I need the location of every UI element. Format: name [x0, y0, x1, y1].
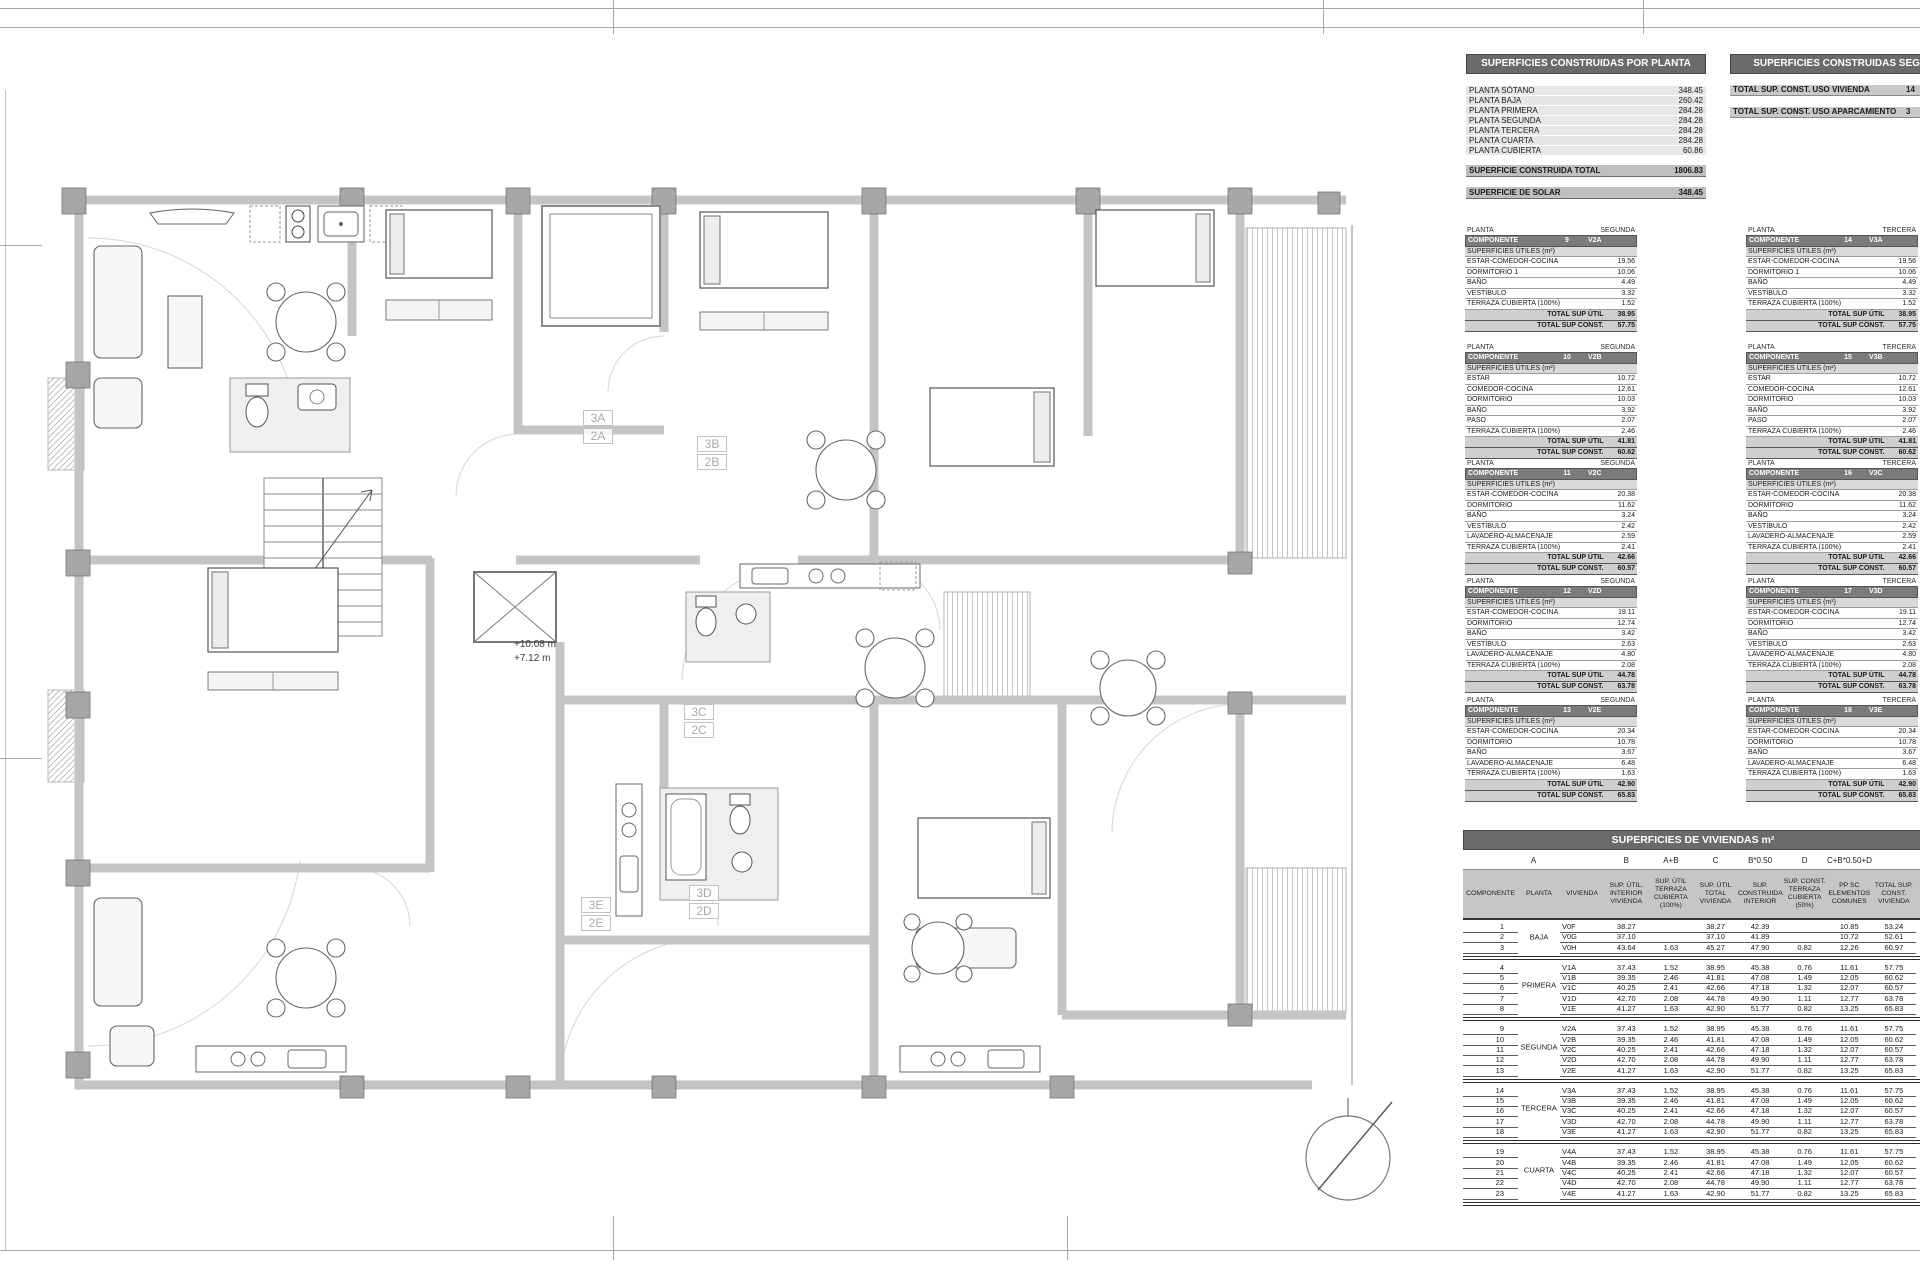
room-row: ESTAR-COMEDOR-COCINA 19.56	[1746, 257, 1918, 268]
total-util-row: TOTAL SUP ÚTIL 42.66	[1465, 553, 1637, 564]
header-cell: SUP. CONSTRUIDA INTERIOR	[1738, 870, 1783, 918]
componente-number: 11	[1546, 469, 1588, 479]
total-const-label: TOTAL SUP CONST.	[1818, 682, 1884, 692]
value-cell: 42.90	[1693, 1066, 1738, 1077]
total-util-value: 42.66	[1898, 553, 1916, 563]
room-label: ESTAR-COMEDOR-COCINA	[1467, 727, 1558, 737]
component-table: PLANTA SEGUNDA COMPONENTE 13 V2E SUPERFI…	[1465, 696, 1637, 802]
room-value: 3.24	[1621, 511, 1635, 521]
planta-label: PLANTA	[1467, 577, 1494, 586]
value-cell: 51.77	[1738, 1189, 1783, 1200]
room-value: 11.62	[1899, 501, 1916, 511]
room-value: 2.08	[1621, 661, 1635, 671]
table-row: 22 V4D 42.70 2.08 44.78 49.90 1.11 12.77…	[1463, 1178, 1920, 1188]
value-cell: 1.63	[1649, 1127, 1694, 1138]
row-value: 3	[1906, 107, 1910, 117]
room-value: 4.80	[1621, 650, 1635, 660]
room-row: BAÑO 3.92	[1746, 406, 1918, 417]
planta-row: PLANTA TERCERA	[1746, 696, 1918, 705]
group-separator	[1463, 1017, 1920, 1021]
total-util-value: 38.95	[1898, 310, 1916, 320]
componente-number: 16	[1827, 469, 1869, 479]
unit-label-top: 3D	[689, 885, 719, 901]
planta-group-label: SEGUNDA	[1518, 1042, 1560, 1051]
component-table: PLANTA TERCERA COMPONENTE 14 V3A SUPERFI…	[1746, 226, 1918, 332]
table-row: 9 V2A 37.43 1.52 38.95 45.38 0.76 11.61 …	[1463, 1024, 1920, 1034]
planta-value: TERCERA	[1883, 459, 1916, 468]
vivienda-cell: V2E	[1560, 1066, 1604, 1077]
row-label: PLANTA PRIMERA	[1469, 106, 1538, 115]
room-row: VESTÍBULO 3.32	[1746, 289, 1918, 300]
room-label: BAÑO	[1467, 748, 1487, 758]
componente-number: 9	[1546, 236, 1588, 246]
room-row: BAÑO 3.24	[1465, 511, 1637, 522]
room-label: BAÑO	[1748, 278, 1768, 288]
room-row: BAÑO 3.24	[1746, 511, 1918, 522]
section-band: SUPERFICIES ÚTILES (m²)	[1746, 480, 1918, 490]
planta-cell	[1518, 1004, 1560, 1015]
section-band: SUPERFICIES ÚTILES (m²)	[1465, 480, 1637, 490]
total-util-label: TOTAL SUP ÚTIL	[1828, 553, 1884, 563]
shaft	[542, 206, 660, 326]
room-row: ESTAR 10.72	[1465, 374, 1637, 385]
room-row: DORMITORIO 10.78	[1465, 738, 1637, 749]
component-table: PLANTA TERCERA COMPONENTE 16 V3C SUPERFI…	[1746, 459, 1918, 575]
room-label: DORMITORIO	[1467, 501, 1512, 511]
componente-cell: 8	[1463, 1004, 1518, 1015]
component-table: PLANTA SEGUNDA COMPONENTE 9 V2A SUPERFIC…	[1465, 226, 1637, 332]
componente-band: COMPONENTE 16 V3C	[1746, 468, 1918, 480]
unit-label-bottom: 2C	[684, 722, 714, 738]
value-cell: 41.27	[1604, 1127, 1649, 1138]
room-value: 2.07	[1621, 416, 1635, 426]
room-label: ESTAR-COMEDOR-COCINA	[1467, 608, 1558, 618]
room-rows: ESTAR-COMEDOR-COCINA 19.11 DORMITORIO 12…	[1746, 608, 1918, 671]
room-row: ESTAR-COMEDOR-COCINA 20.34	[1465, 727, 1637, 738]
planta-value: TERCERA	[1883, 226, 1916, 235]
componente-label: COMPONENTE	[1468, 706, 1546, 716]
componente-label: COMPONENTE	[1468, 469, 1546, 479]
planta-row: PLANTA TERCERA	[1746, 343, 1918, 352]
room-label: BAÑO	[1467, 406, 1487, 416]
componente-band: COMPONENTE 9 V2A	[1465, 235, 1637, 247]
total-util-row: TOTAL SUP ÚTIL 42.90	[1465, 780, 1637, 791]
row-label: PLANTA BAJA	[1469, 96, 1521, 105]
total-util-value: 42.90	[1617, 780, 1635, 790]
room-value: 3.42	[1621, 629, 1635, 639]
value-cell: 42.90	[1693, 1004, 1738, 1015]
header-cell: PP SC ELEMENTOS COMUNES	[1827, 870, 1872, 918]
room-value: 12.61	[1898, 385, 1916, 395]
unit-label-top: 3E	[581, 897, 611, 913]
formula-cell: C+B*0.50+D	[1827, 856, 1872, 866]
kitchen-bottom-left	[196, 1046, 346, 1072]
room-label: TERRAZA CUBIERTA (100%)	[1748, 543, 1841, 553]
room-value: 2.63	[1902, 640, 1916, 650]
planta-group-label: TERCERA	[1518, 1104, 1560, 1113]
unit-label-bottom: 2E	[581, 915, 611, 931]
componente-band: COMPONENTE 15 V3B	[1746, 352, 1918, 364]
room-value: 4.49	[1902, 278, 1916, 288]
value-cell: 0.82	[1782, 1004, 1827, 1015]
group-separator	[1463, 1140, 1920, 1144]
floor-plan	[0, 0, 1400, 1280]
planta-label: PLANTA	[1467, 226, 1494, 235]
componente-cell: 18	[1463, 1127, 1518, 1138]
unit-label-top: 3C	[684, 704, 714, 720]
table-row: 12 V2D 42.70 2.08 44.78 49.90 1.11 12.77…	[1463, 1055, 1920, 1065]
room-row: PASO 2.07	[1746, 416, 1918, 427]
room-row: VESTÍBULO 2.42	[1746, 522, 1918, 533]
room-row: TERRAZA CUBIERTA (100%) 2.46	[1465, 427, 1637, 438]
total-util-label: TOTAL SUP ÚTIL	[1828, 310, 1884, 320]
room-row: TERRAZA CUBIERTA (100%) 2.41	[1746, 543, 1918, 554]
room-row: DORMITORIO 10.03	[1746, 395, 1918, 406]
table-row: PLANTA CUBIERTA 60.86	[1466, 146, 1706, 156]
total-util-value: 44.78	[1898, 671, 1916, 681]
room-label: LAVADERO-ALMACENAJE	[1467, 759, 1553, 769]
componente-number: 12	[1546, 587, 1588, 597]
table-row: 3 V0H 43.64 1.63 45.27 47.90 0.82 12.26 …	[1463, 943, 1920, 953]
room-value: 1.63	[1621, 769, 1635, 779]
room-value: 10.06	[1617, 268, 1635, 278]
component-table: PLANTA SEGUNDA COMPONENTE 11 V2C SUPERFI…	[1465, 459, 1637, 575]
room-label: VESTÍBULO	[1748, 289, 1787, 299]
room-value: 10.72	[1898, 374, 1916, 384]
value-cell: 13.25	[1827, 1066, 1872, 1077]
room-value: 12.61	[1617, 385, 1635, 395]
planta-label: PLANTA	[1748, 226, 1775, 235]
room-label: ESTAR	[1748, 374, 1771, 384]
table-row: 13 V2E 41.27 1.63 42.90 51.77 0.82 13.25…	[1463, 1066, 1920, 1076]
room-row: VESTÍBULO 2.42	[1465, 522, 1637, 533]
room-row: TERRAZA CUBIERTA (100%) 2.46	[1746, 427, 1918, 438]
header-cell: VIVIENDA	[1560, 870, 1604, 918]
room-row: DORMITORIO 11.62	[1465, 501, 1637, 512]
room-row: TERRAZA CUBIERTA (100%) 1.63	[1746, 769, 1918, 780]
unit-label: 3E 2E	[581, 897, 611, 931]
kitchen-mid-right	[740, 562, 920, 590]
formula-cell: A	[1463, 856, 1604, 866]
room-label: BAÑO	[1748, 629, 1768, 639]
value-cell: 42.90	[1693, 1189, 1738, 1200]
room-value: 11.62	[1618, 501, 1635, 511]
room-row: DORMITORIO 10.03	[1465, 395, 1637, 406]
room-value: 2.59	[1902, 532, 1916, 542]
component-table: PLANTA TERCERA COMPONENTE 18 V3E SUPERFI…	[1746, 696, 1918, 802]
componente-number: 17	[1827, 587, 1869, 597]
room-label: VESTÍBULO	[1467, 289, 1506, 299]
room-label: COMEDOR-COCINA	[1748, 385, 1814, 395]
room-value: 3.24	[1902, 511, 1916, 521]
planta-value: SEGUNDA	[1600, 577, 1635, 586]
room-row: LAVADERO-ALMACENAJE 6.48	[1746, 759, 1918, 770]
componente-band: COMPONENTE 18 V3E	[1746, 705, 1918, 717]
value-cell: 65.83	[1872, 1004, 1917, 1015]
room-rows: ESTAR 10.72 COMEDOR-COCINA 12.61 DORMITO…	[1746, 374, 1918, 437]
planta-cell	[1518, 1066, 1560, 1077]
drawing-sheet: { "plan": { "elevation": {"line1": "+10.…	[0, 0, 1920, 1280]
total-util-label: TOTAL SUP ÚTIL	[1828, 780, 1884, 790]
componente-label: COMPONENTE	[1468, 587, 1546, 597]
room-row: TERRAZA CUBIERTA (100%) 1.63	[1465, 769, 1637, 780]
solar-row: SUPERFICIE DE SOLAR 348.45	[1466, 187, 1706, 199]
total-util-value: 38.95	[1617, 310, 1635, 320]
value-cell: 51.77	[1738, 1066, 1783, 1077]
room-value: 2.46	[1902, 427, 1916, 437]
room-row: ESTAR-COMEDOR-COCINA 20.34	[1746, 727, 1918, 738]
room-row: TERRAZA CUBIERTA (100%) 1.52	[1746, 299, 1918, 310]
room-value: 2.59	[1621, 532, 1635, 542]
planta-value: TERCERA	[1883, 577, 1916, 586]
table-bottom-rule	[1463, 1202, 1920, 1206]
room-label: ESTAR-COMEDOR-COCINA	[1748, 490, 1839, 500]
total-util-value: 41.81	[1617, 437, 1635, 447]
total-const-label: TOTAL SUP CONST.	[1818, 791, 1884, 801]
total-util-row: TOTAL SUP ÚTIL 38.95	[1465, 310, 1637, 321]
total-const-row: TOTAL SUP CONST. 57.75	[1465, 321, 1637, 332]
room-value: 20.38	[1617, 490, 1635, 500]
room-row: ESTAR-COMEDOR-COCINA 20.38	[1465, 490, 1637, 501]
planta-label: PLANTA	[1467, 459, 1494, 468]
planta-row: PLANTA TERCERA	[1746, 577, 1918, 586]
value-cell: 42.90	[1693, 1127, 1738, 1138]
total-const-row: TOTAL SUP CONST. 60.57	[1465, 564, 1637, 575]
solar-label: SUPERFICIE DE SOLAR	[1469, 187, 1561, 198]
total-util-label: TOTAL SUP ÚTIL	[1547, 780, 1603, 790]
componente-cell: 23	[1463, 1189, 1518, 1200]
total-util-label: TOTAL SUP ÚTIL	[1547, 310, 1603, 320]
planta-value: TERCERA	[1883, 343, 1916, 352]
vivienda-code: V3B	[1869, 353, 1915, 363]
componente-number: 14	[1827, 236, 1869, 246]
room-row: LAVADERO-ALMACENAJE 4.80	[1746, 650, 1918, 661]
row-label: PLANTA SÓTANO	[1469, 86, 1535, 95]
planta-row: PLANTA SEGUNDA	[1465, 696, 1637, 705]
componente-number: 10	[1546, 353, 1588, 363]
componente-band: COMPONENTE 10 V2B	[1465, 352, 1637, 364]
planta-group: 9 V2A 37.43 1.52 38.95 45.38 0.76 11.61 …	[1463, 1017, 1920, 1075]
row-label: PLANTA SEGUNDA	[1469, 116, 1541, 125]
total-const-value: 63.78	[1898, 682, 1916, 692]
unit-label: 3C 2C	[684, 704, 714, 738]
vivienda-code: V2E	[1588, 706, 1634, 716]
value-cell: 0.82	[1782, 1066, 1827, 1077]
room-row: BAÑO 4.49	[1465, 278, 1637, 289]
room-value: 2.07	[1902, 416, 1916, 426]
planta-row: PLANTA SEGUNDA	[1465, 459, 1637, 468]
total-const-row: TOTAL SUP CONST. 65.83	[1746, 791, 1918, 802]
elevator	[474, 572, 556, 642]
room-value: 2.08	[1902, 661, 1916, 671]
table-row: PLANTA CUARTA 284.28	[1466, 136, 1706, 146]
componente-cell: 3	[1463, 943, 1518, 954]
north-arrow	[1306, 1098, 1392, 1200]
room-label: LAVADERO-ALMACENAJE	[1467, 532, 1553, 542]
section-band: SUPERFICIES ÚTILES (m²)	[1465, 717, 1637, 727]
header-cell: PLANTA	[1518, 870, 1560, 918]
room-label: VESTÍBULO	[1748, 640, 1787, 650]
room-value: 3.42	[1902, 629, 1916, 639]
row-value: 348.45	[1679, 86, 1703, 95]
room-value: 1.63	[1902, 769, 1916, 779]
componente-number: 13	[1546, 706, 1588, 716]
total-const-label: TOTAL SUP CONST.	[1537, 448, 1603, 458]
vivienda-code: V2A	[1588, 236, 1634, 246]
unit-label-bottom: 2D	[689, 903, 719, 919]
table-rows: PLANTA SÓTANO 348.45 PLANTA BAJA 260.42 …	[1466, 86, 1706, 156]
total-util-value: 44.78	[1617, 671, 1635, 681]
unit-label: 3A 2A	[583, 410, 613, 444]
total-util-row: TOTAL SUP ÚTIL 44.78	[1465, 671, 1637, 682]
total-const-value: 65.83	[1617, 791, 1635, 801]
planta-row: PLANTA SEGUNDA	[1465, 343, 1637, 352]
planta-row: PLANTA TERCERA	[1746, 459, 1918, 468]
room-row: BAÑO 3.92	[1465, 406, 1637, 417]
table-row: PLANTA TERCERA 284.28	[1466, 126, 1706, 136]
vivienda-cell: V1E	[1560, 1004, 1604, 1015]
room-row: TERRAZA CUBIERTA (100%) 2.08	[1465, 661, 1637, 672]
room-rows: ESTAR 10.72 COMEDOR-COCINA 12.61 DORMITO…	[1465, 374, 1637, 437]
section-band: SUPERFICIES ÚTILES (m²)	[1465, 598, 1637, 608]
room-label: BAÑO	[1467, 511, 1487, 521]
total-const-row: TOTAL SUP CONST. 57.75	[1746, 321, 1918, 332]
room-label: TERRAZA CUBIERTA (100%)	[1748, 661, 1841, 671]
room-row: COMEDOR-COCINA 12.61	[1746, 385, 1918, 396]
room-row: BAÑO 3.42	[1746, 629, 1918, 640]
total-const-value: 60.62	[1617, 448, 1635, 458]
room-label: BAÑO	[1748, 511, 1768, 521]
table-row: 17 V3D 42.70 2.08 44.78 49.90 1.11 12.77…	[1463, 1117, 1920, 1127]
table-superficies-viviendas: SUPERFICIES DE VIVIENDAS m² A B A+B C B*…	[1463, 830, 1920, 1206]
planta-cell	[1518, 1189, 1560, 1200]
table-superficies-segun-uso: SUPERFICIES CONSTRUIDAS SEGÚN USO TOTAL …	[1730, 54, 1920, 118]
room-row: VESTÍBULO 2.63	[1746, 640, 1918, 651]
room-rows: ESTAR-COMEDOR-COCINA 19.56 DORMITORIO 1 …	[1465, 257, 1637, 310]
table-title: SUPERFICIES CONSTRUIDAS SEGÚN USO	[1730, 54, 1920, 74]
total-const-value: 60.62	[1898, 448, 1916, 458]
vivienda-code: V2B	[1588, 353, 1634, 363]
room-label: LAVADERO-ALMACENAJE	[1467, 650, 1553, 660]
total-const-label: TOTAL SUP CONST.	[1818, 564, 1884, 574]
room-row: BAÑO 3.67	[1465, 748, 1637, 759]
value-cell: 0.82	[1782, 943, 1827, 954]
planta-label: PLANTA	[1748, 696, 1775, 705]
vivienda-code: V3E	[1869, 706, 1915, 716]
planta-value: SEGUNDA	[1600, 459, 1635, 468]
room-label: LAVADERO-ALMACENAJE	[1748, 532, 1834, 542]
row-value: 284.28	[1679, 116, 1703, 125]
room-label: DORMITORIO	[1748, 501, 1793, 511]
table-row: TOTAL SUP. CONST. USO VIVIENDA 14	[1730, 85, 1920, 96]
row-value: 60.86	[1683, 146, 1703, 155]
component-table: PLANTA TERCERA COMPONENTE 17 V3D SUPERFI…	[1746, 577, 1918, 693]
section-band: SUPERFICIES ÚTILES (m²)	[1746, 717, 1918, 727]
planta-group: 1 V0F 38.27 38.27 42.39 10.85 53.24	[1463, 922, 1920, 953]
group-separator	[1463, 1079, 1920, 1083]
room-row: DORMITORIO 10.78	[1746, 738, 1918, 749]
room-value: 12.74	[1617, 619, 1635, 629]
table-row: 7 V1D 42.70 2.08 44.78 49.90 1.11 12.77 …	[1463, 994, 1920, 1004]
room-value: 10.03	[1898, 395, 1916, 405]
value-cell: 51.77	[1738, 1004, 1783, 1015]
planta-label: PLANTA	[1748, 343, 1775, 352]
vivienda-code: V3D	[1869, 587, 1915, 597]
table-row: TOTAL SUP. CONST. USO APARCAMIENTO 3	[1730, 107, 1920, 118]
header-cell: SUP. CONST. TERRAZA CUBIERTA (50%)	[1782, 870, 1827, 918]
header-cell: SUP. ÚTIL. INTERIOR VIVIENDA	[1604, 870, 1649, 918]
value-cell: 51.77	[1738, 1127, 1783, 1138]
room-value: 3.67	[1902, 748, 1916, 758]
table-row: PLANTA SEGUNDA 284.28	[1466, 116, 1706, 126]
section-band: SUPERFICIES ÚTILES (m²)	[1465, 247, 1637, 257]
planta-value: SEGUNDA	[1600, 343, 1635, 352]
header-cell: SUP. ÚTIL TERRAZA CUBIERTA (100%)	[1649, 870, 1694, 918]
room-label: ESTAR-COMEDOR-COCINA	[1467, 490, 1558, 500]
component-table: PLANTA TERCERA COMPONENTE 15 V3B SUPERFI…	[1746, 343, 1918, 459]
total-util-row: TOTAL SUP ÚTIL 44.78	[1746, 671, 1918, 682]
planta-group: 14 V3A 37.43 1.52 38.95 45.38 0.76 11.61…	[1463, 1079, 1920, 1137]
total-util-label: TOTAL SUP ÚTIL	[1547, 553, 1603, 563]
elevation-line-1: +10.08 m	[514, 638, 556, 652]
room-row: DORMITORIO 11.62	[1746, 501, 1918, 512]
room-label: PASO	[1748, 416, 1767, 426]
unit-label-bottom: 2A	[583, 428, 613, 444]
table-row: 4 V1A 37.43 1.52 38.95 45.38 0.76 11.61 …	[1463, 963, 1920, 973]
row-value: 284.28	[1679, 126, 1703, 135]
total-const-row: TOTAL SUP CONST. 63.78	[1465, 682, 1637, 693]
value-cell: 47.90	[1738, 943, 1783, 954]
total-const-value: 60.57	[1617, 564, 1635, 574]
room-label: VESTÍBULO	[1748, 522, 1787, 532]
kitchen-center	[616, 784, 642, 916]
room-row: ESTAR-COMEDOR-COCINA 19.11	[1746, 608, 1918, 619]
room-label: TERRAZA CUBIERTA (100%)	[1467, 769, 1560, 779]
planta-group-label: BAJA	[1518, 933, 1560, 942]
room-value: 1.52	[1621, 299, 1635, 309]
room-label: COMEDOR-COCINA	[1467, 385, 1533, 395]
room-row: VESTÍBULO 2.63	[1465, 640, 1637, 651]
planta-value: SEGUNDA	[1600, 696, 1635, 705]
planta-row: PLANTA TERCERA	[1746, 226, 1918, 235]
room-row: LAVADERO-ALMACENAJE 4.80	[1465, 650, 1637, 661]
total-const-row: TOTAL SUP CONST. 63.78	[1746, 682, 1918, 693]
room-label: ESTAR-COMEDOR-COCINA	[1748, 608, 1839, 618]
vivienda-cell: V4E	[1560, 1189, 1604, 1200]
total-util-row: TOTAL SUP ÚTIL 41.81	[1746, 437, 1918, 448]
componente-label: COMPONENTE	[1749, 706, 1827, 716]
bathrooms-center	[660, 788, 778, 900]
table-row: 18 V3E 41.27 1.63 42.90 51.77 0.82 13.25…	[1463, 1127, 1920, 1137]
room-row: TERRAZA CUBIERTA (100%) 1.52	[1465, 299, 1637, 310]
componente-band: COMPONENTE 17 V3D	[1746, 586, 1918, 598]
row-label: PLANTA CUBIERTA	[1469, 146, 1541, 155]
componente-label: COMPONENTE	[1468, 353, 1546, 363]
value-cell: 65.83	[1872, 1189, 1917, 1200]
componente-label: COMPONENTE	[1468, 236, 1546, 246]
planta-group-label: CUARTA	[1518, 1165, 1560, 1174]
formula-row: A B A+B C B*0.50 D C+B*0.50+D	[1463, 856, 1920, 866]
unit-label: 3B 2B	[697, 436, 727, 470]
section-band: SUPERFICIES ÚTILES (m²)	[1746, 364, 1918, 374]
componente-label: COMPONENTE	[1749, 587, 1827, 597]
row-value: 284.28	[1679, 136, 1703, 145]
total-const-value: 57.75	[1898, 321, 1916, 331]
total-const-label: TOTAL SUP CONST.	[1537, 682, 1603, 692]
value-cell: 41.27	[1604, 1004, 1649, 1015]
table-row: 14 V3A 37.43 1.52 38.95 45.38 0.76 11.61…	[1463, 1086, 1920, 1096]
room-value: 3.67	[1621, 748, 1635, 758]
